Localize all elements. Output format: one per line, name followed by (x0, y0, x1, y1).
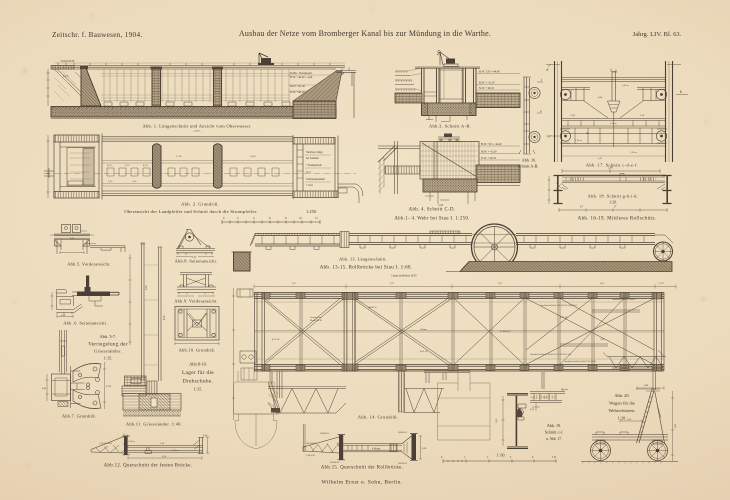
svg-text:Ausbau der Netze vom Bromberge: Ausbau der Netze vom Bromberger Kanal bi… (239, 29, 491, 38)
svg-text:Anschluß an Blech 200 300-10: Anschluß an Blech 200 300-10 2⌊90.60.11 (540, 304, 577, 307)
svg-text:Länge der Brücke 39,50: Länge der Brücke 39,50 (391, 275, 417, 278)
svg-text:9,57: 9,57 (498, 282, 503, 285)
svg-text:M.W. + 41,30: M.W. + 41,30 (481, 151, 497, 154)
svg-text:Ordin.- Stauspiegel: Ordin.- Stauspiegel (290, 72, 312, 75)
svg-text:100.90.13: 100.90.13 (330, 462, 340, 464)
svg-text:Abb.11. Griesständer. 1:40.: Abb.11. Griesständer. 1:40. (126, 422, 182, 427)
svg-text:2°: 2° (614, 206, 616, 209)
svg-text:0,785: 0,785 (106, 385, 112, 388)
svg-text:Drehschuhe.: Drehschuhe. (183, 379, 213, 385)
svg-text:2,40: 2,40 (674, 423, 677, 428)
svg-text:1,05 m: 1,05 m (622, 84, 629, 87)
svg-text:Abb. 2. Grundriß.: Abb. 2. Grundriß. (181, 202, 219, 207)
svg-text:1,10 m: 1,10 m (575, 139, 582, 142)
svg-text:4,50 .50°: 4,50 .50° (420, 350, 428, 353)
svg-text:Abb. 4. Schnitt C-D.: Abb. 4. Schnitt C-D. (409, 208, 456, 213)
svg-text:4 Rohre: 4 Rohre (372, 448, 381, 451)
svg-text:180.180.90: 180.180.90 (306, 443, 317, 445)
svg-text:5 m: 5 m (552, 456, 556, 459)
svg-text:N.W. +40,10: N.W. +40,10 (290, 91, 305, 94)
svg-text:N.W. + 40,10: N.W. + 40,10 (479, 87, 495, 90)
svg-text:1: 1 (464, 456, 466, 459)
svg-text:k: k (680, 90, 682, 94)
svg-text:M.W. + 41,30: M.W. + 41,30 (479, 82, 495, 85)
svg-text:1,80 4,50: 1,80 4,50 (306, 455, 315, 457)
svg-text:1,50 m: 1,50 m (630, 151, 637, 154)
svg-text:Schnitt A-B.: Schnitt A-B. (518, 164, 539, 169)
svg-text:Verriegelung der: Verriegelung der (88, 342, 128, 348)
svg-text:Wagen für die: Wagen für die (609, 401, 635, 406)
svg-text:Abb. 16.: Abb. 16. (522, 158, 537, 163)
svg-text:6: 6 (269, 217, 271, 220)
svg-text:0,10: 0,10 (530, 409, 535, 411)
svg-text:8: 8 (285, 217, 287, 220)
svg-text:1:20.: 1:20. (618, 416, 627, 421)
svg-text:1,45: 1,45 (132, 180, 137, 183)
svg-text:f: f (541, 78, 543, 82)
svg-text:100.90.11: 100.90.11 (398, 432, 408, 434)
svg-text:0: 0 (223, 217, 225, 220)
svg-text:H.W. 7,95 = 44,40: H.W. 7,95 = 44,40 (479, 71, 500, 74)
svg-text:M.W. +41,30: M.W. +41,30 (290, 85, 305, 88)
svg-text:Schnitt c-f.: Schnitt c-f. (545, 430, 564, 435)
svg-text:Abb.9. Vorderansicht.: Abb.9. Vorderansicht. (174, 299, 218, 304)
svg-text:Anschluß an Blech 200-10 2L: Anschluß an Blech 200-10 2L 90.60 (564, 360, 597, 363)
svg-text:4,30: 4,30 (203, 434, 208, 437)
svg-text:9,53: 9,53 (600, 282, 605, 285)
svg-text:Zeitschr. f. Bauwesen, 1904.: Zeitschr. f. Bauwesen, 1904. (52, 31, 142, 39)
svg-text:9,57: 9,57 (292, 282, 297, 285)
svg-text:Abb.15. Querschnitt der Roll: Abb.15. Querschnitt der Rollbrücke. (321, 466, 403, 471)
svg-text:1:20.: 1:20. (609, 201, 617, 205)
svg-text:57,4: 57,4 (306, 171, 311, 174)
svg-text:n. Abb. 17.: n. Abb. 17. (546, 437, 562, 441)
svg-text:— 39,50 —: — 39,50 — (190, 130, 203, 133)
svg-text:+44,50 N.N.: +44,50 N.N. (60, 59, 75, 64)
svg-text:Abb.12. Querschnitt der feste: Abb.12. Querschnitt der festen Brücke. (104, 464, 193, 469)
svg-text:12: 12 (315, 217, 318, 220)
svg-text:1,50: 1,50 (640, 114, 645, 117)
svg-text:2,35: 2,35 (108, 180, 113, 183)
svg-text:Abb. 16-19. Mittleres Rollschü: Abb. 16-19. Mittleres Rollschütz. (578, 217, 657, 222)
svg-text:Abb. 19.: Abb. 19. (547, 423, 562, 428)
svg-text:Abb. 14. Grundriß.: Abb. 14. Grundriß. (358, 415, 399, 420)
svg-text:0,90: 0,90 (422, 447, 427, 450)
svg-text:Griesständer.: Griesständer. (94, 349, 122, 354)
svg-text:Wilhelm Ernst u. Sohn, Berlin.: Wilhelm Ernst u. Sohn, Berlin. (321, 480, 402, 486)
svg-text:1:1,5: 1:1,5 (63, 75, 69, 78)
svg-text:2: 2 (237, 217, 239, 220)
svg-text:4,34: 4,34 (162, 455, 167, 458)
svg-text:⌊80.80.10: ⌊80.80.10 (368, 306, 377, 309)
svg-text:Abb. 13-15. Rollbrücke bei S: Abb. 13-15. Rollbrücke bei Stau I. 1:60. (320, 266, 413, 271)
svg-text:d: d (547, 68, 549, 72)
svg-text:0: 0 (441, 456, 443, 459)
svg-text:1,04: 1,04 (627, 418, 632, 421)
svg-text:1:250.: 1:250. (306, 209, 317, 214)
svg-text:4,52: 4,52 (163, 315, 166, 320)
svg-text:d': d' (586, 131, 589, 135)
svg-text:1:15.: 1:15. (104, 356, 113, 361)
svg-text:Jahrg. LIV. Bl. 63.: Jahrg. LIV. Bl. 63. (633, 31, 682, 38)
svg-text:+ 41,6: + 41,6 (306, 184, 313, 187)
svg-text:0,88: 0,88 (644, 384, 649, 387)
svg-text:Oberansicht der Landpfeiler un: Oberansicht der Landpfeiler und Schnitt … (124, 209, 257, 214)
svg-text:Anschluß an Blech 300-10: Anschluß an Blech 300-10 (612, 298, 636, 301)
svg-text:Abb. 1. Längenschnitt und Ansi: Abb. 1. Längenschnitt und Ansicht vom Ob… (142, 124, 251, 129)
svg-text:4,70 .50°: 4,70 .50° (272, 338, 280, 341)
svg-text:4: 4 (253, 217, 255, 220)
svg-text:2: 2 (487, 456, 489, 459)
svg-text:Blech 250-10: Blech 250-10 (310, 320, 323, 322)
svg-text:4,7: 4,7 (580, 206, 584, 209)
svg-text:Abb.10. Grundriß.: Abb.10. Grundriß. (179, 348, 216, 353)
svg-text:5,50 m: 5,50 m (128, 440, 135, 443)
svg-text:Abb .6. Seitenansicht .: Abb .6. Seitenansicht . (63, 321, 109, 326)
svg-text:1:15.: 1:15. (194, 387, 203, 392)
svg-text:der Kammer: der Kammer (306, 157, 319, 160)
svg-text:Abb.5. Vorderansicht.: Abb.5. Vorderansicht. (67, 262, 111, 267)
svg-text:e: e (540, 109, 542, 113)
svg-text:Abb. 5-7.: Abb. 5-7. (100, 334, 117, 339)
svg-text:Abb. 20.: Abb. 20. (614, 393, 629, 398)
svg-text:Lager für die: Lager für die (182, 369, 214, 376)
svg-text:5,07: 5,07 (598, 157, 603, 160)
svg-text:0,40: 0,40 (42, 387, 47, 390)
svg-text:100mm: 100mm (420, 329, 427, 331)
svg-text:Abb.1- 4. Wehr bei Stau I. 1:2: Abb.1- 4. Wehr bei Stau I. 1:250. (394, 217, 469, 222)
svg-text:1: 60.: 1: 60. (496, 453, 505, 458)
svg-text:1,98: 1,98 (600, 339, 605, 341)
svg-text:4,10 .50°: 4,10 .50° (560, 316, 568, 319)
svg-text:Abb.3. Schnitt A-B.: Abb.3. Schnitt A-B. (429, 124, 471, 129)
svg-text:Abb.8. Seitenansicht.: Abb.8. Seitenansicht. (175, 259, 218, 264)
svg-text:H.W. +44,40 = 4,40: H.W. +44,40 = 4,40 (290, 76, 313, 79)
svg-text:5,32: 5,32 (145, 285, 148, 290)
svg-text:2,10: 2,10 (125, 164, 130, 167)
svg-text:0,90: 0,90 (495, 418, 498, 423)
svg-text:Wehrschützen.: Wehrschützen. (608, 408, 635, 413)
svg-text:4,10 m: 4,10 m (610, 122, 617, 125)
svg-text:Nutzbare Länge: Nutzbare Länge (306, 151, 323, 154)
svg-text:0,60: 0,60 (598, 96, 603, 99)
svg-text:Schleusenkammer: Schleusenkammer (306, 178, 325, 181)
svg-text:4,10: 4,10 (107, 164, 112, 167)
svg-text:Abb.7. Grundriß.: Abb.7. Grundriß. (62, 414, 96, 419)
svg-text:100.90.11: 100.90.11 (320, 433, 330, 435)
svg-text:1,50 50 150 2: 1,50 50 150 2 (99, 442, 113, 445)
svg-text:10: 10 (299, 217, 302, 220)
svg-text:1,88: 1,88 (608, 167, 613, 170)
svg-text:Anschluß an Blech 300 310-12: Anschluß an Blech 300 310-12 L.90.90.11 … (530, 353, 572, 356)
svg-text:14,50: 14,50 (250, 155, 256, 158)
svg-text:9,57: 9,57 (390, 282, 395, 285)
svg-text:1,77½: 1,77½ (658, 282, 664, 285)
svg-text:4: 4 (532, 456, 534, 459)
svg-text:N.W. + 40,10: N.W. + 40,10 (481, 157, 497, 160)
svg-text:1,34: 1,34 (160, 442, 165, 445)
svg-text:1,507: 1,507 (570, 114, 576, 117)
svg-text:Abb. 18. Schnitt g-h-i-k.: Abb. 18. Schnitt g-h-i-k. (588, 194, 639, 199)
svg-text:17,00: 17,00 (176, 155, 182, 158)
svg-text:3: 3 (510, 456, 512, 459)
svg-text:2L 80.80.10: 2L 80.80.10 (500, 331, 511, 333)
svg-text:Abb. 13. Längenschnitt.: Abb. 13. Längenschnitt. (339, 257, 387, 262)
svg-text:H.W. 7,95 = 44,40: H.W. 7,95 = 44,40 (481, 143, 502, 146)
svg-text:Abb.8-10.: Abb.8-10. (189, 362, 207, 367)
svg-text:4,10: 4,10 (143, 164, 148, 167)
svg-text:+ Drempeltiefe: + Drempeltiefe (306, 164, 323, 167)
svg-text:4,76 m: 4,76 m (172, 449, 179, 452)
svg-text:Anschluß an: Anschluß an (310, 316, 322, 319)
